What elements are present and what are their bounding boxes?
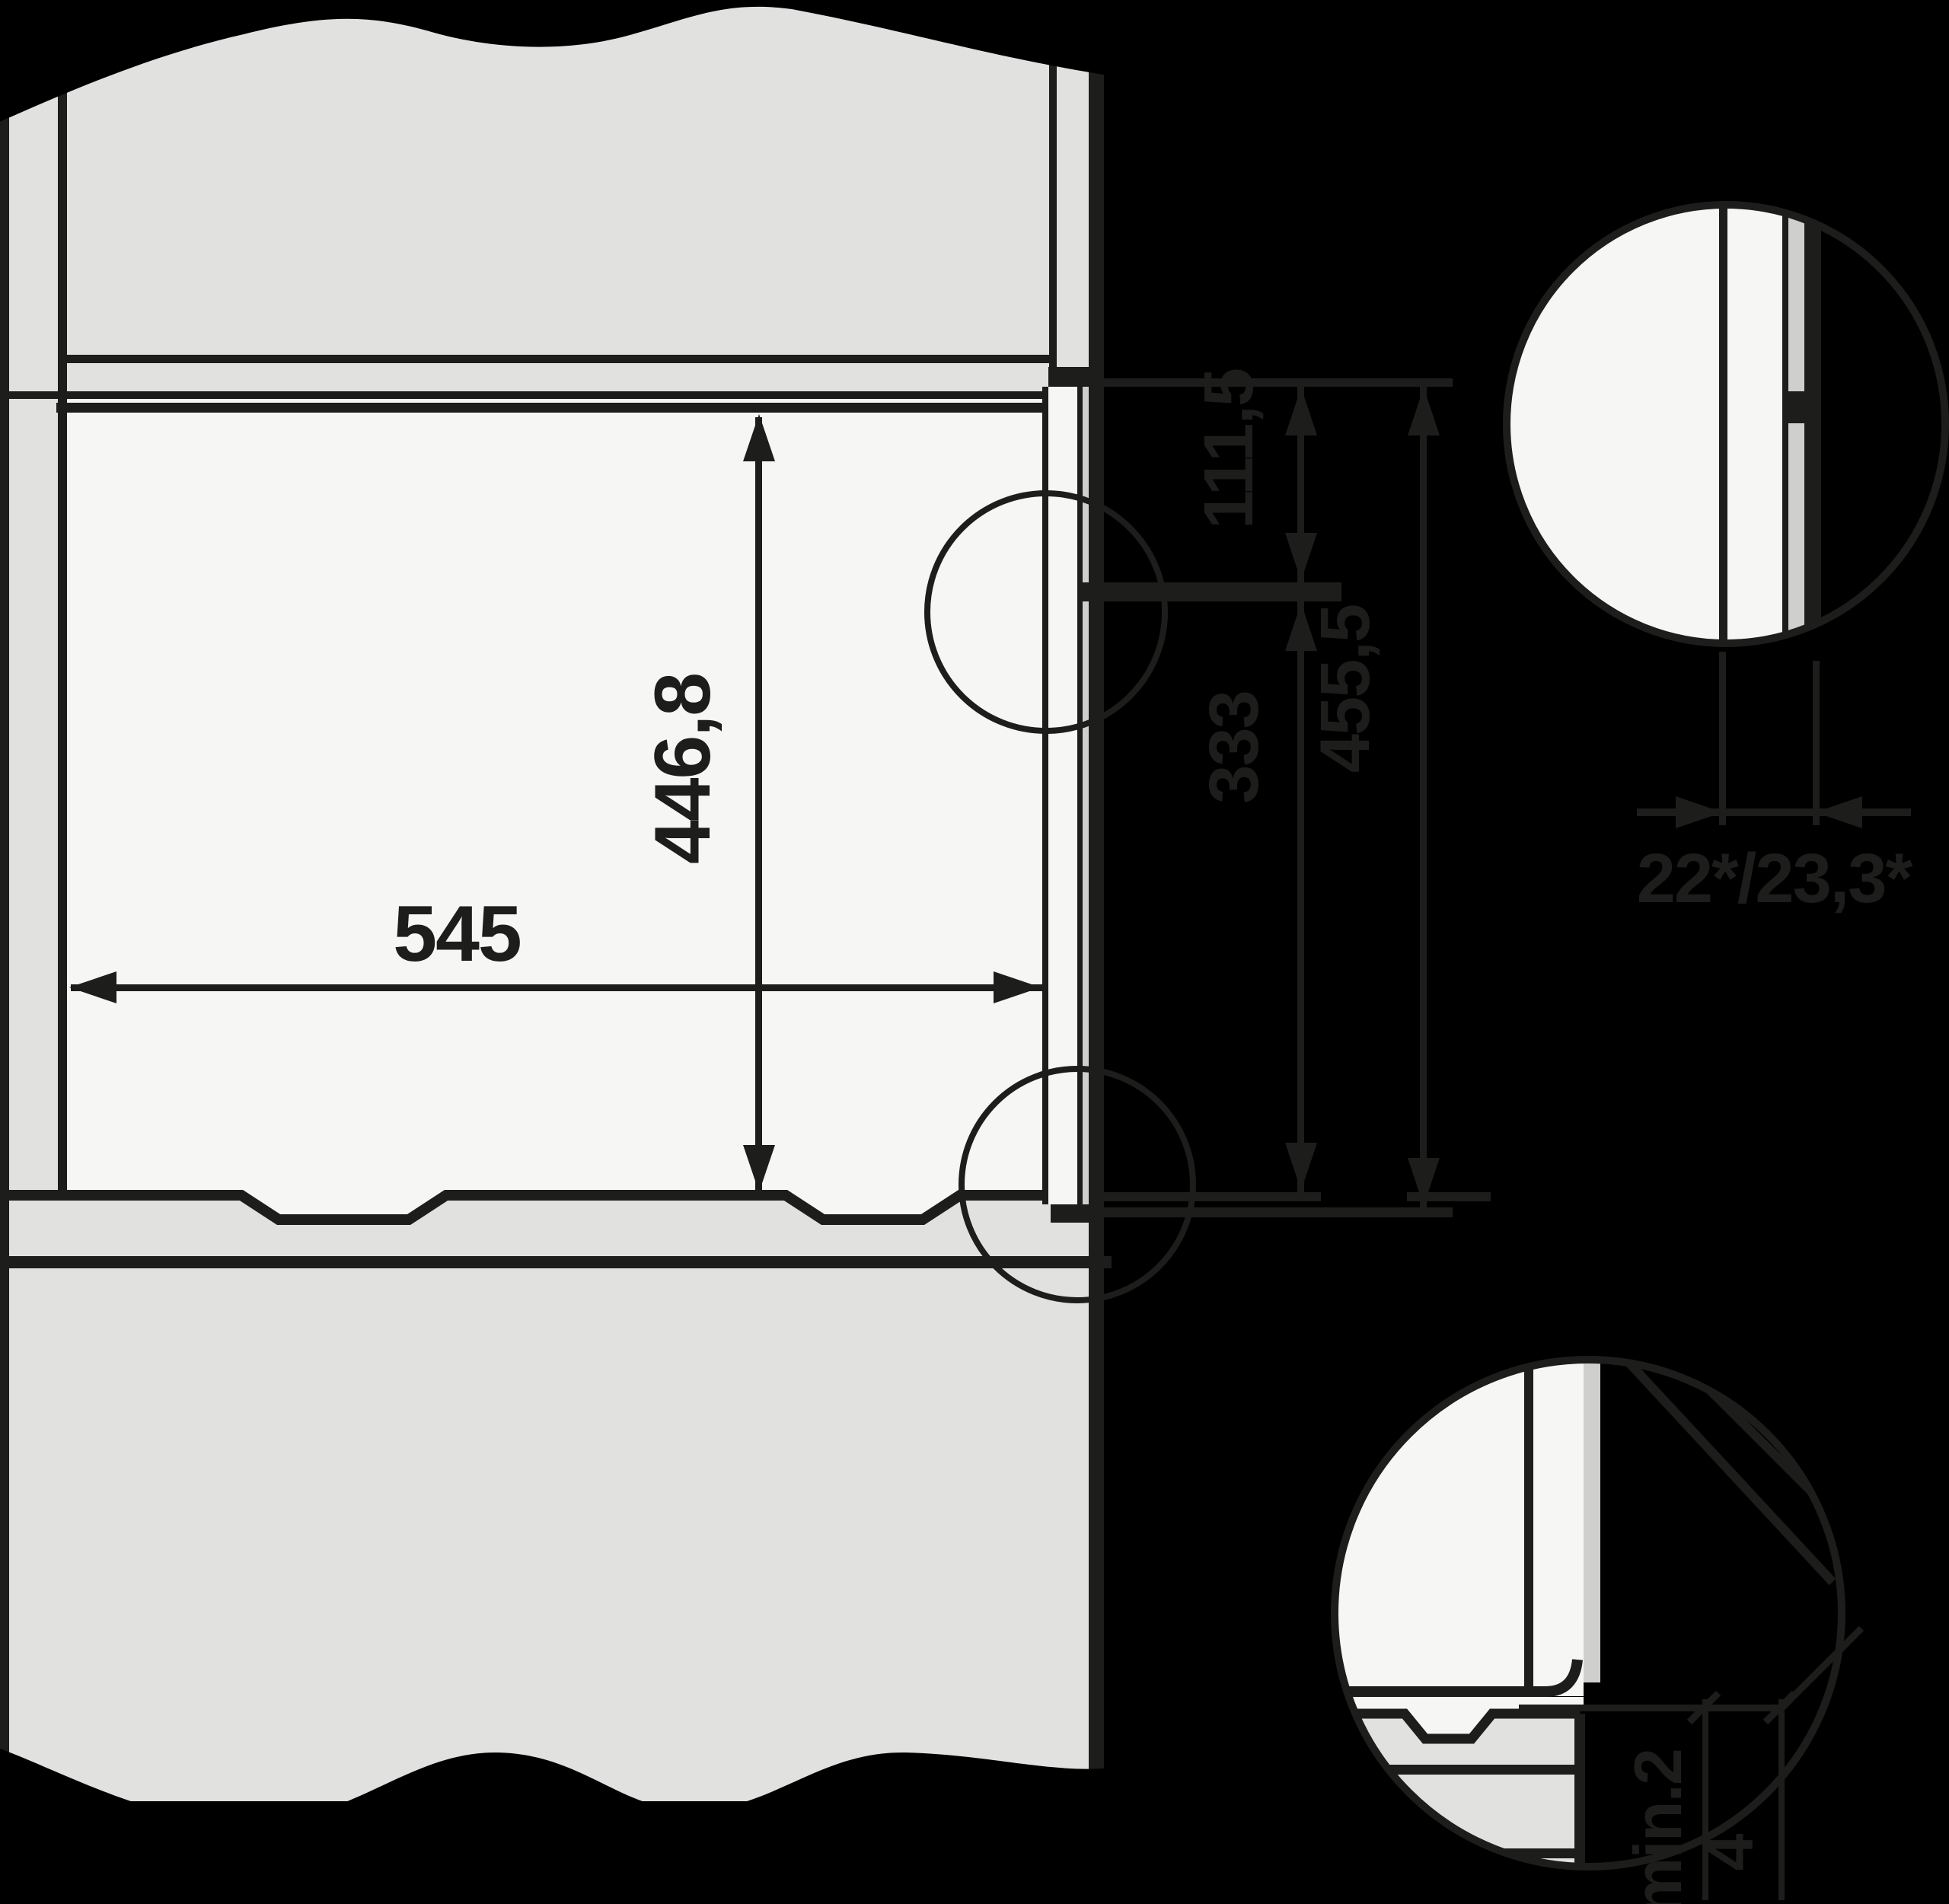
back-panel-outer-line	[0, 69, 9, 1835]
dim-label-niche-height: 446,8	[639, 674, 727, 864]
door-seal-strip	[1083, 387, 1089, 1204]
ext-line-door-bottom	[1100, 1207, 1453, 1217]
lower-front-edge	[1574, 1714, 1585, 1877]
top-shelf-lower-line	[0, 391, 1049, 399]
door-inner-line	[1077, 387, 1083, 1204]
top-front-inner-line	[1049, 30, 1057, 387]
dim-label-front-height: 455,5	[1306, 605, 1384, 773]
dim-label-middle-offset: 333	[1195, 691, 1273, 804]
worktop-line	[0, 1256, 1112, 1268]
lower-section	[9, 1268, 1104, 1801]
ext-line-niche-floor	[1096, 1192, 1321, 1201]
cabinet-cross-section	[0, 0, 1113, 1904]
door-front-panel	[1048, 387, 1077, 1204]
shelf-gap	[67, 399, 1042, 403]
ext-line-top	[1104, 378, 1453, 387]
front-edge-bar	[1089, 46, 1104, 1797]
top-section	[67, 0, 1049, 391]
dim-label-bottom-clearance: min.2	[1620, 1749, 1695, 1904]
door-bottom-block	[1051, 1204, 1104, 1223]
top-front-board	[1057, 30, 1089, 367]
top-shelf-upper-line	[65, 355, 1049, 363]
niche-ceiling-line	[56, 403, 1049, 413]
dim-label-top-offset: 111,5	[1190, 369, 1268, 529]
ext-line-niche-floor-right	[1407, 1192, 1491, 1201]
dim-label-seal-offset: 4	[1692, 1833, 1767, 1871]
seal-notch	[1782, 391, 1821, 423]
installation-diagram: 446,8 545 111,5 333 455,5	[0, 0, 1949, 1904]
niche	[67, 413, 1042, 1191]
dim-label-niche-depth: 545	[393, 890, 521, 978]
dim-label-door-protrusion: 22*/23,3*	[1637, 840, 1913, 917]
door-rear-line	[1042, 387, 1048, 1204]
